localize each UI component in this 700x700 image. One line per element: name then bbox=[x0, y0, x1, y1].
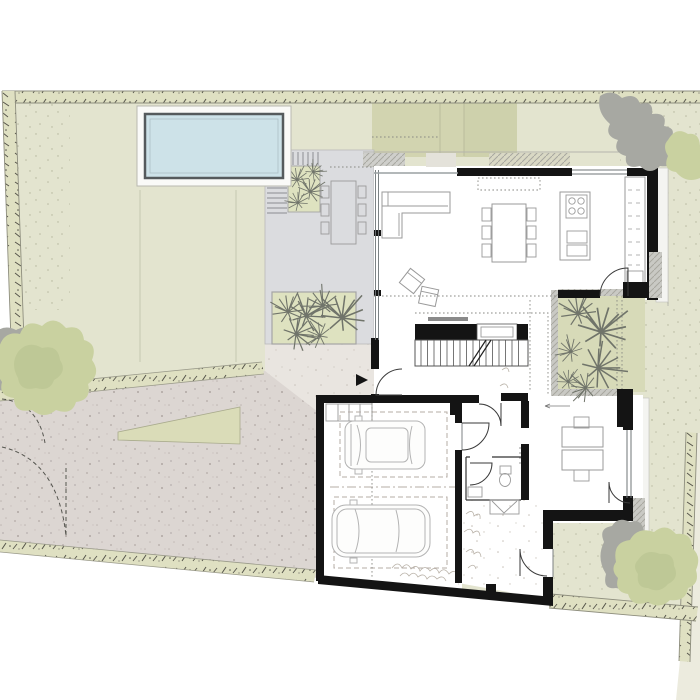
lounge-chair-2 bbox=[419, 286, 439, 306]
terrace-planting-bed bbox=[270, 281, 370, 355]
boundary-ticks bbox=[2, 91, 700, 103]
wall-west-hall-1 bbox=[371, 338, 379, 369]
car-sedan bbox=[332, 500, 430, 563]
courtyard-pier-south bbox=[617, 389, 633, 427]
wall-living-south-1 bbox=[558, 290, 600, 298]
media-wall bbox=[415, 324, 477, 340]
wall-garage-east-2 bbox=[455, 450, 462, 583]
swimming-pool bbox=[137, 106, 291, 186]
desk-2 bbox=[562, 450, 603, 470]
media-wall-end bbox=[517, 324, 528, 340]
courtyard-garden bbox=[550, 289, 645, 406]
dining-table bbox=[492, 204, 526, 262]
site-plan-canvas bbox=[0, 0, 700, 700]
pool-water bbox=[145, 114, 283, 178]
wall-office-west-2 bbox=[521, 444, 529, 500]
wall-office-east-2 bbox=[623, 496, 633, 518]
wall-cap-beige-hatch bbox=[489, 153, 570, 167]
boundary-strip-north bbox=[2, 91, 700, 103]
stair-cupboard bbox=[477, 324, 517, 340]
floor-plan-drawing bbox=[0, 0, 700, 700]
wall-garage-east-1 bbox=[455, 403, 462, 423]
wall-vestibule-east-1 bbox=[543, 520, 553, 549]
tv-screen bbox=[428, 317, 468, 321]
wall-vestibule-north bbox=[501, 393, 528, 401]
car-suv bbox=[345, 416, 425, 474]
wall-office-south bbox=[543, 510, 633, 521]
wall-garage-north bbox=[316, 395, 462, 403]
wall-office-west-1 bbox=[521, 401, 529, 428]
wall-north-1 bbox=[457, 168, 572, 176]
desk-1 bbox=[562, 427, 603, 447]
wall-cap-gray-hatch bbox=[363, 153, 405, 167]
doorstep bbox=[486, 584, 496, 595]
wall-garage-west bbox=[316, 395, 324, 581]
